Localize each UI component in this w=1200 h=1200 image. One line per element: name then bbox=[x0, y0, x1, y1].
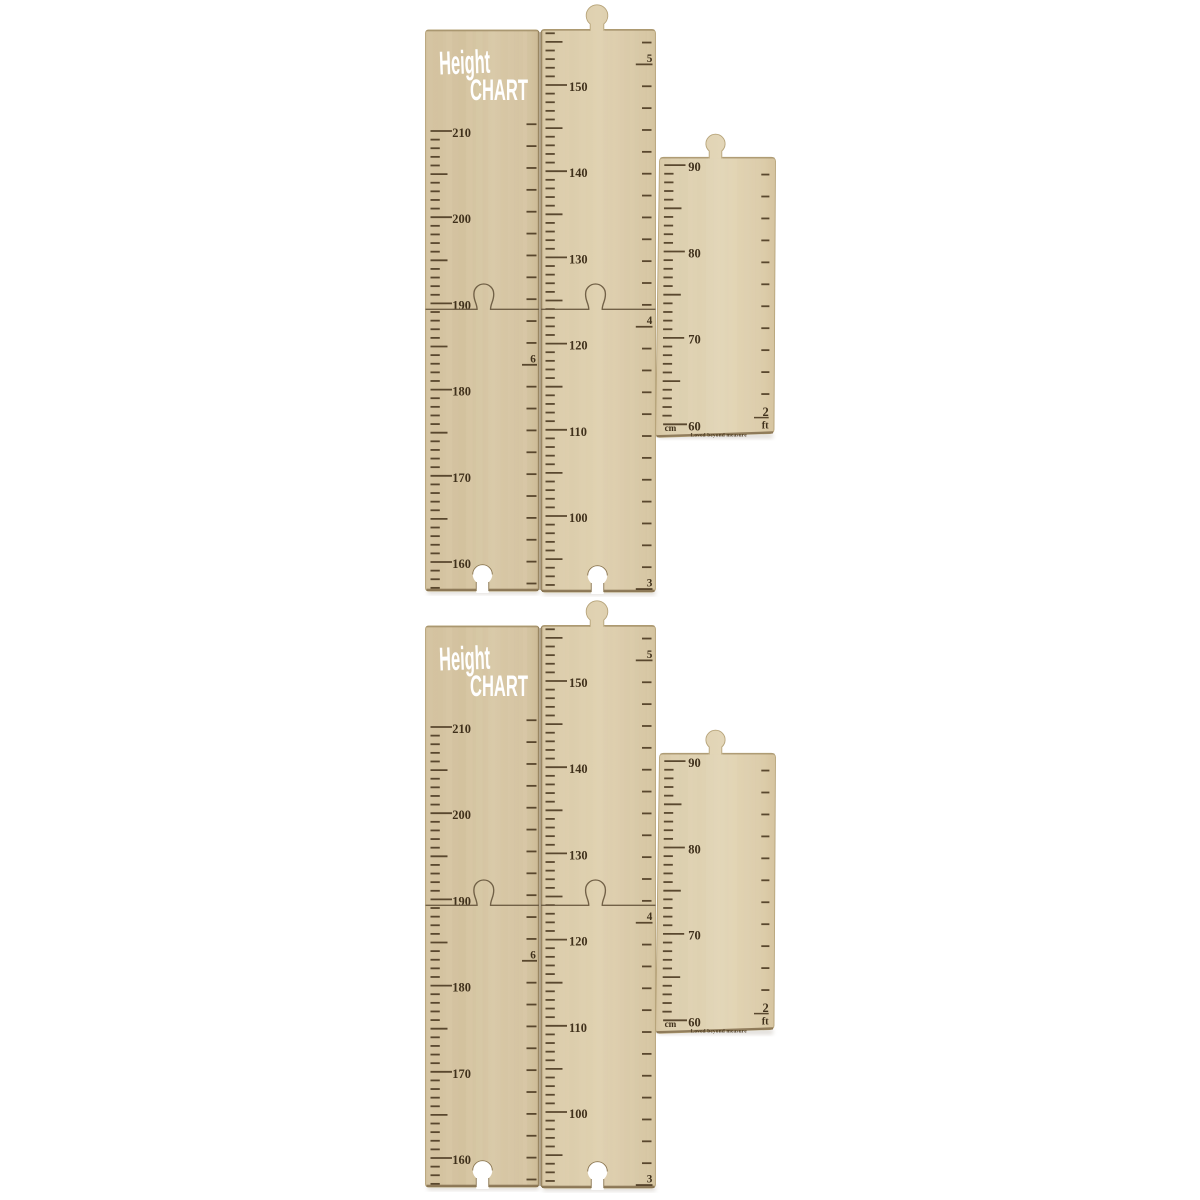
svg-text:180: 180 bbox=[452, 385, 471, 399]
svg-text:120: 120 bbox=[569, 935, 588, 949]
svg-text:5: 5 bbox=[647, 649, 653, 661]
svg-text:200: 200 bbox=[452, 808, 471, 822]
svg-text:130: 130 bbox=[569, 252, 588, 266]
svg-text:190: 190 bbox=[452, 298, 471, 312]
svg-text:6: 6 bbox=[530, 950, 536, 962]
svg-text:4: 4 bbox=[647, 911, 653, 923]
svg-text:180: 180 bbox=[452, 981, 471, 995]
svg-text:210: 210 bbox=[452, 126, 471, 140]
svg-text:3: 3 bbox=[647, 577, 653, 589]
svg-text:cm: cm bbox=[665, 1019, 677, 1029]
svg-text:5: 5 bbox=[647, 53, 653, 65]
svg-text:60: 60 bbox=[688, 1016, 701, 1030]
svg-text:100: 100 bbox=[569, 1107, 588, 1121]
svg-text:4: 4 bbox=[647, 315, 653, 327]
svg-text:120: 120 bbox=[569, 339, 588, 353]
svg-text:200: 200 bbox=[452, 212, 471, 226]
svg-text:140: 140 bbox=[569, 166, 588, 180]
svg-text:150: 150 bbox=[569, 80, 588, 94]
svg-text:70: 70 bbox=[688, 333, 701, 347]
svg-text:Loved beyond measure: Loved beyond measure bbox=[691, 433, 748, 439]
svg-text:60: 60 bbox=[688, 420, 701, 434]
svg-text:100: 100 bbox=[569, 511, 588, 525]
svg-text:6: 6 bbox=[530, 354, 536, 366]
svg-text:70: 70 bbox=[688, 929, 701, 943]
svg-text:150: 150 bbox=[569, 676, 588, 690]
svg-text:ft: ft bbox=[762, 1017, 769, 1028]
svg-text:160: 160 bbox=[452, 557, 471, 571]
svg-text:ft: ft bbox=[762, 421, 769, 432]
svg-text:90: 90 bbox=[688, 160, 701, 174]
svg-text:110: 110 bbox=[569, 425, 587, 439]
svg-text:170: 170 bbox=[452, 1067, 471, 1081]
svg-text:160: 160 bbox=[452, 1153, 471, 1167]
svg-text:80: 80 bbox=[688, 246, 701, 260]
svg-text:140: 140 bbox=[569, 762, 588, 776]
svg-text:130: 130 bbox=[569, 848, 588, 862]
svg-text:90: 90 bbox=[688, 756, 701, 770]
svg-text:80: 80 bbox=[688, 842, 701, 856]
svg-text:CHART: CHART bbox=[470, 74, 528, 107]
svg-text:cm: cm bbox=[665, 423, 677, 433]
svg-text:3: 3 bbox=[647, 1173, 653, 1185]
svg-text:170: 170 bbox=[452, 471, 471, 485]
svg-text:110: 110 bbox=[569, 1021, 587, 1035]
svg-text:CHART: CHART bbox=[470, 670, 528, 703]
svg-text:Loved beyond measure: Loved beyond measure bbox=[691, 1029, 748, 1035]
svg-text:190: 190 bbox=[452, 894, 471, 908]
svg-text:210: 210 bbox=[452, 722, 471, 736]
